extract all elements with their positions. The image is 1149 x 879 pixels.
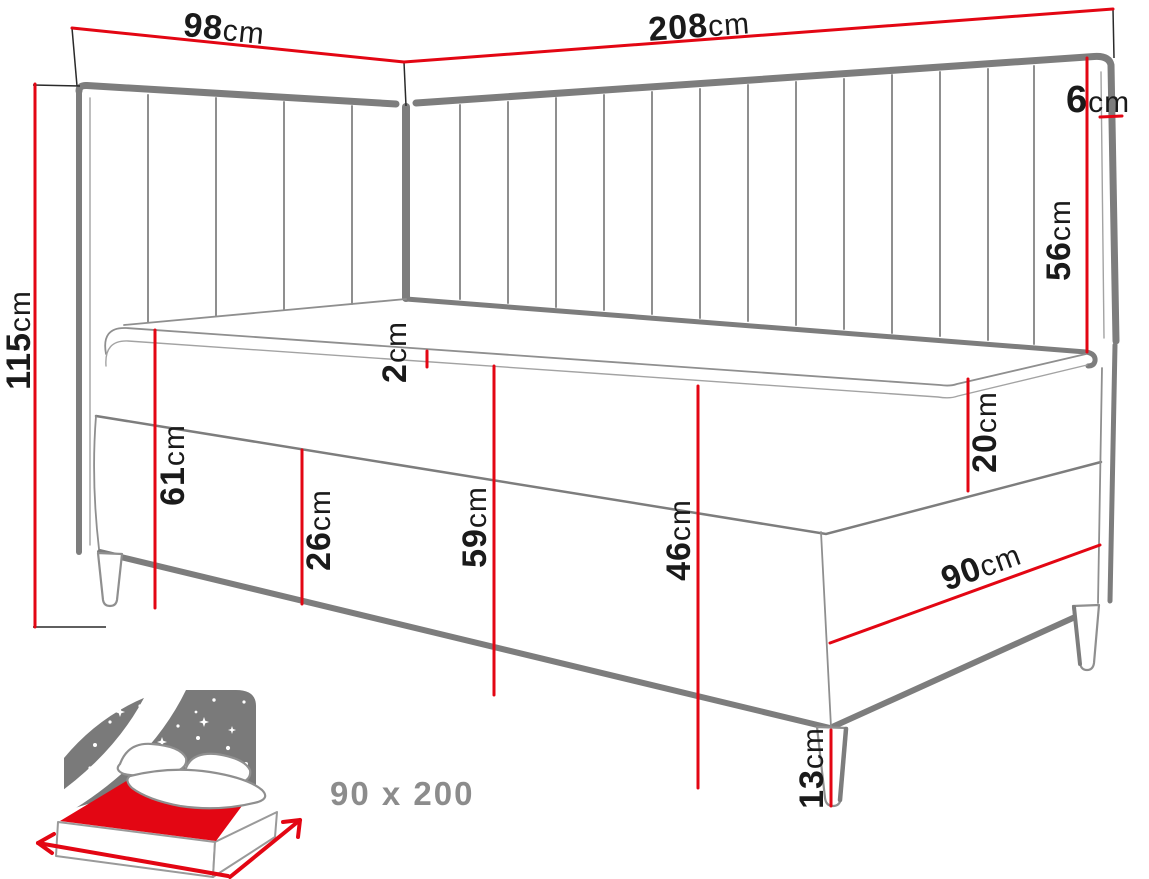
- leg-head: [98, 553, 122, 606]
- label-13cm: 13cm: [793, 727, 831, 809]
- label-6cm: 6cm: [1066, 79, 1130, 121]
- label-20cm: 20cm: [966, 391, 1004, 473]
- diagram-canvas: 98cm 208cm 6cm 56cm 115cm 2cm 61cm 26cm …: [0, 0, 1149, 879]
- label-61cm: 61cm: [154, 424, 192, 506]
- mattress: [105, 299, 1095, 398]
- bed-base: [94, 345, 1115, 728]
- headboard-left-panel: [79, 85, 396, 552]
- mattress-size-label: 90 x 200: [330, 775, 474, 812]
- label-2cm: 2cm: [376, 321, 414, 383]
- mattress-size-pictogram: 90 x 200: [38, 690, 474, 877]
- dimension-labels: 98cm 208cm 6cm 56cm 115cm 2cm 61cm 26cm …: [0, 3, 1130, 809]
- label-26cm: 26cm: [300, 489, 338, 571]
- headboard-back-panel: [416, 56, 1116, 344]
- label-98cm: 98cm: [181, 6, 266, 52]
- label-56cm: 56cm: [1040, 199, 1078, 281]
- dim-line-208: [404, 9, 1113, 62]
- label-46cm: 46cm: [660, 499, 698, 581]
- bed-dimension-diagram: 98cm 208cm 6cm 56cm 115cm 2cm 61cm 26cm …: [0, 0, 1149, 879]
- label-115cm: 115cm: [0, 290, 38, 390]
- label-59cm: 59cm: [456, 486, 494, 568]
- dimension-lines: [33, 9, 1122, 806]
- label-208cm: 208cm: [647, 3, 751, 49]
